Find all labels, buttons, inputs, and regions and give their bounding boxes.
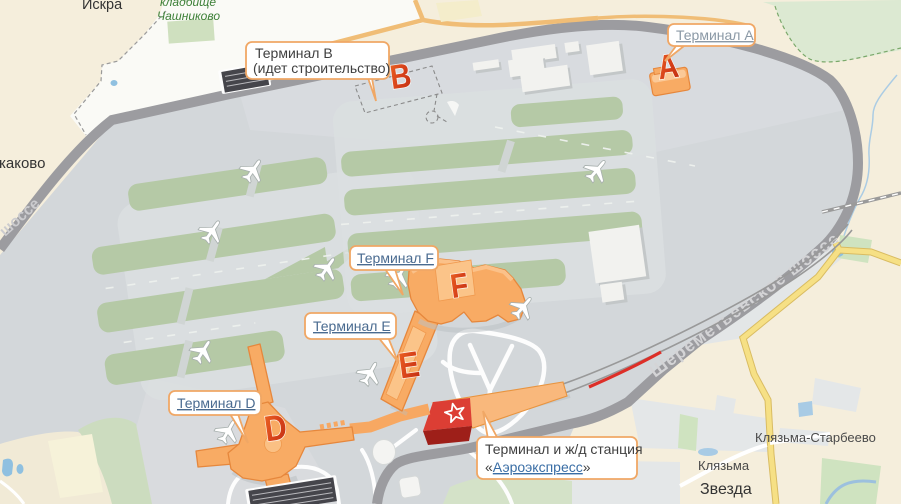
svg-text:(идет строительство): (идет строительство)	[253, 60, 390, 76]
svg-text:Терминал A: Терминал A	[676, 27, 754, 43]
svg-text:Терминал E: Терминал E	[313, 318, 391, 334]
svg-text:каково: каково	[0, 155, 45, 172]
svg-text:Клязьма: Клязьма	[698, 458, 750, 473]
svg-text:Терминал и ж/д станция: Терминал и ж/д станция	[485, 441, 643, 457]
svg-text:Терминал F: Терминал F	[357, 250, 434, 266]
svg-text:Звезда: Звезда	[700, 481, 752, 498]
svg-text:Чашниково: Чашниково	[157, 9, 220, 23]
svg-text:Терминал D: Терминал D	[177, 395, 255, 411]
svg-text:Искра: Искра	[82, 0, 123, 13]
svg-text:Терминал B: Терминал B	[255, 45, 333, 61]
svg-text:«Аэроэкспресс»: «Аэроэкспресс»	[485, 459, 591, 475]
svg-text:кладбище: кладбище	[160, 0, 216, 9]
svg-text:Клязьма-Старбеево: Клязьма-Старбеево	[755, 430, 876, 445]
